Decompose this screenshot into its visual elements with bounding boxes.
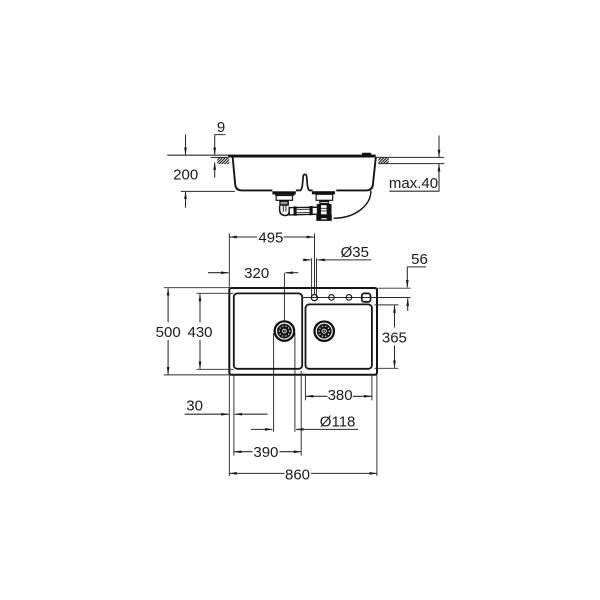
svg-text:390: 390 <box>253 444 278 461</box>
svg-text:30: 30 <box>186 398 203 415</box>
svg-text:500: 500 <box>156 324 181 341</box>
svg-text:320: 320 <box>244 265 269 282</box>
svg-text:200: 200 <box>173 167 198 184</box>
svg-text:9: 9 <box>217 119 225 136</box>
svg-text:56: 56 <box>411 251 428 268</box>
svg-text:380: 380 <box>328 387 353 404</box>
svg-text:860: 860 <box>285 466 310 483</box>
svg-text:Ø118: Ø118 <box>320 414 356 431</box>
svg-text:Ø35: Ø35 <box>341 244 369 261</box>
svg-text:495: 495 <box>258 230 283 247</box>
svg-text:365: 365 <box>382 329 407 346</box>
svg-text:430: 430 <box>187 324 212 341</box>
svg-text:max.40: max.40 <box>389 175 438 192</box>
